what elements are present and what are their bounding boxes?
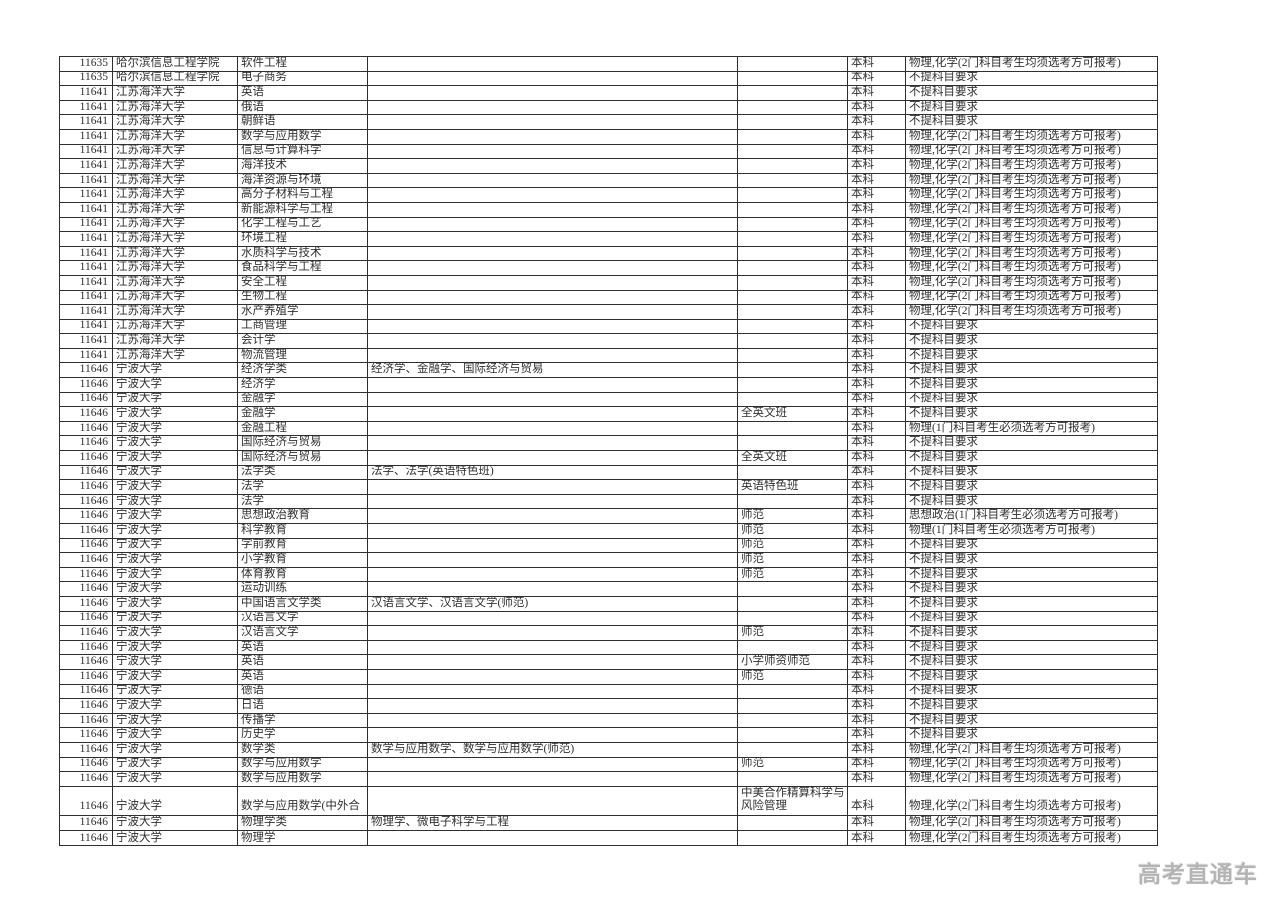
table-cell-level: 本科	[848, 101, 906, 115]
table-cell-remark: 全英文班	[738, 451, 848, 465]
table-cell-requirement: 物理,化学(2门科目考生均须选考方可报考)	[906, 203, 1157, 217]
table-cell-requirement: 不提科目要求	[906, 626, 1157, 640]
table-cell-university: 江苏海洋大学	[113, 320, 238, 334]
table-cell-remark: 师范	[738, 568, 848, 582]
table-cell-university: 宁波大学	[113, 772, 238, 786]
table-cell-code: 11641	[60, 247, 113, 261]
table-cell-major: 物流管理	[238, 349, 368, 363]
table-cell-major: 化学工程与工艺	[238, 218, 368, 232]
table-cell-university: 宁波大学	[113, 451, 238, 465]
table-cell-level: 本科	[848, 393, 906, 407]
table-row: 11646宁波大学法学类法学、法学(英语特色班)本科不提科目要求	[60, 466, 1157, 481]
table-cell-university: 宁波大学	[113, 685, 238, 699]
table-cell-included	[368, 451, 738, 465]
table-row: 11641江苏海洋大学环境工程本科物理,化学(2门科目考生均须选考方可报考)	[60, 232, 1157, 247]
table-cell-included	[368, 247, 738, 261]
table-cell-remark	[738, 247, 848, 261]
table-cell-remark	[738, 188, 848, 202]
table-cell-requirement: 不提科目要求	[906, 393, 1157, 407]
table-cell-code: 11641	[60, 130, 113, 144]
table-cell-included	[368, 57, 738, 71]
table-cell-level: 本科	[848, 378, 906, 392]
table-cell-university: 哈尔滨信息工程学院	[113, 57, 238, 71]
page: 11635哈尔滨信息工程学院软件工程本科物理,化学(2门科目考生均须选考方可报考…	[0, 0, 1280, 905]
table-cell-included	[368, 291, 738, 305]
table-cell-university: 宁波大学	[113, 728, 238, 742]
table-cell-university: 宁波大学	[113, 393, 238, 407]
table-cell-code: 11641	[60, 334, 113, 348]
table-cell-remark	[738, 159, 848, 173]
table-cell-code: 11641	[60, 261, 113, 275]
table-cell-level: 本科	[848, 772, 906, 786]
table-cell-requirement: 物理,化学(2门科目考生均须选考方可报考)	[906, 305, 1157, 319]
table-cell-code: 11646	[60, 831, 113, 846]
table-cell-level: 本科	[848, 539, 906, 553]
table-cell-level: 本科	[848, 203, 906, 217]
table-cell-included	[368, 188, 738, 202]
table-cell-code: 11646	[60, 466, 113, 480]
table-cell-major: 小学教育	[238, 553, 368, 567]
table-row: 11646宁波大学汉语言文学师范本科不提科目要求	[60, 626, 1157, 641]
table-cell-major: 学前教育	[238, 539, 368, 553]
table-cell-level: 本科	[848, 57, 906, 71]
table-cell-requirement: 不提科目要求	[906, 714, 1157, 728]
table-cell-included	[368, 276, 738, 290]
table-row: 11646宁波大学数学与应用数学师范本科物理,化学(2门科目考生均须选考方可报考…	[60, 758, 1157, 773]
table-row: 11641江苏海洋大学海洋资源与环境本科物理,化学(2门科目考生均须选考方可报考…	[60, 174, 1157, 189]
table-cell-university: 江苏海洋大学	[113, 276, 238, 290]
table-cell-level: 本科	[848, 670, 906, 684]
table-cell-university: 江苏海洋大学	[113, 115, 238, 129]
table-cell-included	[368, 480, 738, 494]
table-cell-code: 11641	[60, 145, 113, 159]
table-cell-included	[368, 115, 738, 129]
table-row: 11646宁波大学数学与应用数学本科物理,化学(2门科目考生均须选考方可报考)	[60, 772, 1157, 787]
table-cell-level: 本科	[848, 436, 906, 450]
table-cell-included	[368, 72, 738, 86]
table-cell-major: 中国语言文学类	[238, 597, 368, 611]
table-cell-requirement: 不提科目要求	[906, 349, 1157, 363]
table-cell-code: 11641	[60, 203, 113, 217]
table-cell-university: 江苏海洋大学	[113, 86, 238, 100]
table-cell-remark	[738, 612, 848, 626]
table-row: 11646宁波大学小学教育师范本科不提科目要求	[60, 553, 1157, 568]
table-cell-code: 11646	[60, 699, 113, 713]
table-cell-university: 江苏海洋大学	[113, 145, 238, 159]
table-cell-level: 本科	[848, 553, 906, 567]
table-cell-level: 本科	[848, 130, 906, 144]
table-cell-level: 本科	[848, 218, 906, 232]
table-cell-remark	[738, 349, 848, 363]
table-cell-university: 哈尔滨信息工程学院	[113, 72, 238, 86]
table-row: 11635哈尔滨信息工程学院软件工程本科物理,化学(2门科目考生均须选考方可报考…	[60, 57, 1157, 72]
table-cell-university: 江苏海洋大学	[113, 247, 238, 261]
table-cell-major: 数学与应用数学	[238, 772, 368, 786]
table-cell-university: 宁波大学	[113, 363, 238, 377]
table-cell-major: 海洋技术	[238, 159, 368, 173]
table-cell-level: 本科	[848, 320, 906, 334]
table-cell-remark	[738, 305, 848, 319]
table-cell-included	[368, 218, 738, 232]
table-cell-remark	[738, 699, 848, 713]
table-cell-included	[368, 203, 738, 217]
table-cell-remark	[738, 86, 848, 100]
table-cell-university: 宁波大学	[113, 553, 238, 567]
table-row: 11641江苏海洋大学水产养殖学本科物理,化学(2门科目考生均须选考方可报考)	[60, 305, 1157, 320]
table-cell-major: 思想政治教育	[238, 509, 368, 523]
table-cell-university: 宁波大学	[113, 597, 238, 611]
table-cell-code: 11646	[60, 509, 113, 523]
table-cell-remark: 师范	[738, 670, 848, 684]
table-cell-code: 11641	[60, 349, 113, 363]
table-cell-requirement: 不提科目要求	[906, 72, 1157, 86]
table-cell-level: 本科	[848, 407, 906, 421]
table-cell-included: 物理学、微电子科学与工程	[368, 816, 738, 830]
table-row: 11646宁波大学法学英语特色班本科不提科目要求	[60, 480, 1157, 495]
table-cell-level: 本科	[848, 232, 906, 246]
table-cell-major: 物理学类	[238, 816, 368, 830]
table-cell-level: 本科	[848, 159, 906, 173]
table-cell-code: 11641	[60, 320, 113, 334]
table-cell-major: 俄语	[238, 101, 368, 115]
table-cell-level: 本科	[848, 509, 906, 523]
table-row: 11646宁波大学金融工程本科物理(1门科目考生必须选考方可报考)	[60, 422, 1157, 437]
table-cell-remark: 师范	[738, 509, 848, 523]
table-cell-code: 11646	[60, 787, 113, 816]
table-cell-code: 11635	[60, 72, 113, 86]
table-cell-level: 本科	[848, 714, 906, 728]
table-cell-code: 11646	[60, 480, 113, 494]
table-cell-level: 本科	[848, 363, 906, 377]
table-cell-level: 本科	[848, 422, 906, 436]
table-cell-code: 11646	[60, 451, 113, 465]
table-cell-remark	[738, 203, 848, 217]
table-cell-level: 本科	[848, 758, 906, 772]
table-cell-included: 法学、法学(英语特色班)	[368, 466, 738, 480]
table-row: 11646宁波大学科学教育师范本科物理(1门科目考生必须选考方可报考)	[60, 524, 1157, 539]
table-cell-level: 本科	[848, 743, 906, 757]
table-row: 11646宁波大学金融学本科不提科目要求	[60, 393, 1157, 408]
table-cell-remark: 英语特色班	[738, 480, 848, 494]
table-cell-university: 江苏海洋大学	[113, 291, 238, 305]
table-row: 11641江苏海洋大学工商管理本科不提科目要求	[60, 320, 1157, 335]
table-cell-code: 11646	[60, 436, 113, 450]
table-cell-requirement: 不提科目要求	[906, 451, 1157, 465]
table-cell-requirement: 不提科目要求	[906, 699, 1157, 713]
table-cell-level: 本科	[848, 451, 906, 465]
table-cell-requirement: 不提科目要求	[906, 466, 1157, 480]
table-cell-major: 信息与计算科学	[238, 145, 368, 159]
table-cell-major: 环境工程	[238, 232, 368, 246]
table-cell-requirement: 不提科目要求	[906, 378, 1157, 392]
table-cell-code: 11646	[60, 422, 113, 436]
table-cell-requirement: 不提科目要求	[906, 115, 1157, 129]
table-cell-remark	[738, 101, 848, 115]
table-cell-remark	[738, 597, 848, 611]
table-cell-level: 本科	[848, 261, 906, 275]
table-row: 11646宁波大学物理学类物理学、微电子科学与工程本科物理,化学(2门科目考生均…	[60, 816, 1157, 831]
table-cell-major: 数学与应用数学	[238, 758, 368, 772]
table-row: 11635哈尔滨信息工程学院电子商务本科不提科目要求	[60, 72, 1157, 87]
table-cell-major: 安全工程	[238, 276, 368, 290]
table-cell-requirement: 物理,化学(2门科目考生均须选考方可报考)	[906, 743, 1157, 757]
table-cell-remark	[738, 232, 848, 246]
table-cell-major: 海洋资源与环境	[238, 174, 368, 188]
table-cell-remark	[738, 145, 848, 159]
table-cell-major: 法学	[238, 495, 368, 509]
table-cell-remark	[738, 466, 848, 480]
table-cell-remark	[738, 334, 848, 348]
table-cell-code: 11646	[60, 378, 113, 392]
table-cell-university: 宁波大学	[113, 641, 238, 655]
table-cell-level: 本科	[848, 334, 906, 348]
table-cell-level: 本科	[848, 699, 906, 713]
table-cell-level: 本科	[848, 568, 906, 582]
table-cell-requirement: 不提科目要求	[906, 101, 1157, 115]
table-cell-major: 新能源科学与工程	[238, 203, 368, 217]
table-cell-remark	[738, 685, 848, 699]
table-cell-remark: 师范	[738, 553, 848, 567]
table-cell-included	[368, 349, 738, 363]
table-cell-requirement: 不提科目要求	[906, 641, 1157, 655]
table-cell-university: 宁波大学	[113, 466, 238, 480]
table-row: 11641江苏海洋大学俄语本科不提科目要求	[60, 101, 1157, 116]
table-cell-level: 本科	[848, 305, 906, 319]
table-cell-included	[368, 758, 738, 772]
table-cell-included	[368, 436, 738, 450]
table-cell-included	[368, 831, 738, 846]
table-cell-remark	[738, 261, 848, 275]
table-cell-requirement: 物理,化学(2门科目考生均须选考方可报考)	[906, 188, 1157, 202]
table-cell-requirement: 不提科目要求	[906, 685, 1157, 699]
table-cell-university: 宁波大学	[113, 699, 238, 713]
table-cell-university: 江苏海洋大学	[113, 218, 238, 232]
table-cell-requirement: 物理(1门科目考生必须选考方可报考)	[906, 524, 1157, 538]
table-cell-code: 11646	[60, 568, 113, 582]
table-cell-university: 宁波大学	[113, 582, 238, 596]
table-cell-major: 物理学	[238, 831, 368, 846]
table-cell-level: 本科	[848, 524, 906, 538]
table-cell-requirement: 不提科目要求	[906, 320, 1157, 334]
table-cell-major: 德语	[238, 685, 368, 699]
table-cell-university: 江苏海洋大学	[113, 232, 238, 246]
table-cell-requirement: 物理,化学(2门科目考生均须选考方可报考)	[906, 261, 1157, 275]
table-cell-requirement: 不提科目要求	[906, 553, 1157, 567]
table-cell-remark	[738, 816, 848, 830]
table-cell-included	[368, 320, 738, 334]
table-cell-code: 11646	[60, 655, 113, 669]
table-cell-remark	[738, 276, 848, 290]
table-row: 11646宁波大学英语师范本科不提科目要求	[60, 670, 1157, 685]
table-row: 11646宁波大学数学类数学与应用数学、数学与应用数学(师范)本科物理,化学(2…	[60, 743, 1157, 758]
table-cell-major: 数学与应用数学	[238, 130, 368, 144]
table-cell-code: 11646	[60, 495, 113, 509]
table-cell-remark: 中美合作精算科学与风险管理	[738, 787, 848, 816]
table-cell-code: 11641	[60, 276, 113, 290]
table-cell-university: 江苏海洋大学	[113, 188, 238, 202]
table-cell-university: 宁波大学	[113, 626, 238, 640]
table-cell-code: 11641	[60, 218, 113, 232]
table-cell-remark	[738, 115, 848, 129]
table-cell-requirement: 物理,化学(2门科目考生均须选考方可报考)	[906, 232, 1157, 246]
table-cell-major: 汉语言文学	[238, 612, 368, 626]
table-cell-requirement: 不提科目要求	[906, 568, 1157, 582]
table-cell-remark	[738, 495, 848, 509]
table-cell-level: 本科	[848, 72, 906, 86]
table-cell-included	[368, 407, 738, 421]
table-cell-code: 11646	[60, 728, 113, 742]
table-cell-remark: 师范	[738, 758, 848, 772]
table-cell-university: 江苏海洋大学	[113, 174, 238, 188]
table-cell-requirement: 物理,化学(2门科目考生均须选考方可报考)	[906, 291, 1157, 305]
table-row: 11646宁波大学汉语言文学本科不提科目要求	[60, 612, 1157, 627]
table-cell-included	[368, 655, 738, 669]
table-cell-level: 本科	[848, 291, 906, 305]
table-cell-requirement: 不提科目要求	[906, 728, 1157, 742]
table-cell-remark	[738, 363, 848, 377]
table-cell-included: 经济学、金融学、国际经济与贸易	[368, 363, 738, 377]
table-cell-major: 朝鲜语	[238, 115, 368, 129]
table-cell-level: 本科	[848, 188, 906, 202]
table-cell-remark: 师范	[738, 539, 848, 553]
table-row: 11646宁波大学日语本科不提科目要求	[60, 699, 1157, 714]
table-cell-major: 科学教育	[238, 524, 368, 538]
table-cell-code: 11646	[60, 626, 113, 640]
table-cell-major: 法学	[238, 480, 368, 494]
table-cell-remark: 师范	[738, 524, 848, 538]
table-cell-level: 本科	[848, 582, 906, 596]
table-cell-level: 本科	[848, 86, 906, 100]
table-cell-university: 宁波大学	[113, 787, 238, 816]
table-cell-major: 经济学类	[238, 363, 368, 377]
table-cell-requirement: 不提科目要求	[906, 334, 1157, 348]
table-cell-code: 11646	[60, 772, 113, 786]
table-cell-major: 金融学	[238, 393, 368, 407]
table-cell-major: 法学类	[238, 466, 368, 480]
table-cell-university: 宁波大学	[113, 407, 238, 421]
table-cell-included	[368, 582, 738, 596]
table-cell-remark	[738, 291, 848, 305]
table-cell-major: 英语	[238, 655, 368, 669]
table-cell-remark	[738, 831, 848, 846]
table-row: 11646宁波大学学前教育师范本科不提科目要求	[60, 539, 1157, 554]
table-cell-major: 传播学	[238, 714, 368, 728]
table-cell-included	[368, 612, 738, 626]
table-cell-major: 食品科学与工程	[238, 261, 368, 275]
table-cell-level: 本科	[848, 816, 906, 830]
table-row: 11646宁波大学体育教育师范本科不提科目要求	[60, 568, 1157, 583]
table-cell-remark	[738, 72, 848, 86]
table-cell-remark: 师范	[738, 626, 848, 640]
table-cell-university: 江苏海洋大学	[113, 349, 238, 363]
table-cell-university: 宁波大学	[113, 568, 238, 582]
table-row: 11646宁波大学金融学全英文班本科不提科目要求	[60, 407, 1157, 422]
table-cell-included	[368, 145, 738, 159]
table-cell-university: 江苏海洋大学	[113, 305, 238, 319]
table-cell-included	[368, 524, 738, 538]
table-cell-major: 数学与应用数学(中外合	[238, 787, 368, 816]
table-cell-remark	[738, 378, 848, 392]
table-cell-university: 宁波大学	[113, 714, 238, 728]
table-cell-remark	[738, 728, 848, 742]
table-cell-included	[368, 378, 738, 392]
table-cell-level: 本科	[848, 276, 906, 290]
admission-table: 11635哈尔滨信息工程学院软件工程本科物理,化学(2门科目考生均须选考方可报考…	[59, 56, 1158, 846]
table-row: 11646宁波大学物理学本科物理,化学(2门科目考生均须选考方可报考)	[60, 831, 1157, 846]
table-cell-included	[368, 553, 738, 567]
table-row: 11646宁波大学经济学类经济学、金融学、国际经济与贸易本科不提科目要求	[60, 363, 1157, 378]
table-cell-university: 宁波大学	[113, 480, 238, 494]
table-cell-included	[368, 539, 738, 553]
table-cell-major: 水质科学与技术	[238, 247, 368, 261]
table-cell-code: 11646	[60, 816, 113, 830]
table-cell-major: 金融工程	[238, 422, 368, 436]
table-cell-requirement: 物理,化学(2门科目考生均须选考方可报考)	[906, 159, 1157, 173]
table-cell-requirement: 思想政治(1门科目考生必须选考方可报考)	[906, 509, 1157, 523]
table-cell-code: 11646	[60, 553, 113, 567]
table-cell-requirement: 不提科目要求	[906, 612, 1157, 626]
table-cell-university: 宁波大学	[113, 436, 238, 450]
table-cell-remark	[738, 57, 848, 71]
table-cell-included	[368, 130, 738, 144]
table-cell-level: 本科	[848, 349, 906, 363]
table-cell-level: 本科	[848, 466, 906, 480]
table-cell-level: 本科	[848, 480, 906, 494]
table-cell-university: 江苏海洋大学	[113, 101, 238, 115]
table-cell-code: 11641	[60, 291, 113, 305]
table-cell-included	[368, 174, 738, 188]
table-cell-major: 运动训练	[238, 582, 368, 596]
table-cell-university: 宁波大学	[113, 743, 238, 757]
table-cell-major: 英语	[238, 670, 368, 684]
table-row: 11646宁波大学运动训练本科不提科目要求	[60, 582, 1157, 597]
table-cell-remark	[738, 582, 848, 596]
table-cell-university: 宁波大学	[113, 612, 238, 626]
table-cell-included	[368, 422, 738, 436]
table-cell-level: 本科	[848, 597, 906, 611]
table-cell-included	[368, 334, 738, 348]
table-cell-level: 本科	[848, 145, 906, 159]
table-cell-major: 高分子材料与工程	[238, 188, 368, 202]
table-cell-remark	[738, 320, 848, 334]
table-cell-code: 11641	[60, 101, 113, 115]
table-cell-code: 11641	[60, 159, 113, 173]
table-cell-requirement: 物理,化学(2门科目考生均须选考方可报考)	[906, 145, 1157, 159]
table-cell-major: 水产养殖学	[238, 305, 368, 319]
table-cell-code: 11646	[60, 743, 113, 757]
table-cell-code: 11635	[60, 57, 113, 71]
table-cell-code: 11646	[60, 582, 113, 596]
table-row: 11641江苏海洋大学化学工程与工艺本科物理,化学(2门科目考生均须选考方可报考…	[60, 218, 1157, 233]
table-cell-level: 本科	[848, 174, 906, 188]
table-cell-code: 11646	[60, 539, 113, 553]
table-cell-code: 11646	[60, 597, 113, 611]
table-cell-requirement: 物理,化学(2门科目考生均须选考方可报考)	[906, 247, 1157, 261]
table-cell-major: 体育教育	[238, 568, 368, 582]
table-cell-university: 宁波大学	[113, 524, 238, 538]
table-cell-major: 生物工程	[238, 291, 368, 305]
table-cell-university: 宁波大学	[113, 495, 238, 509]
table-cell-requirement: 物理,化学(2门科目考生均须选考方可报考)	[906, 787, 1157, 816]
table-cell-requirement: 物理,化学(2门科目考生均须选考方可报考)	[906, 758, 1157, 772]
table-row: 11641江苏海洋大学食品科学与工程本科物理,化学(2门科目考生均须选考方可报考…	[60, 261, 1157, 276]
table-cell-level: 本科	[848, 247, 906, 261]
table-cell-code: 11641	[60, 115, 113, 129]
table-cell-requirement: 不提科目要求	[906, 539, 1157, 553]
table-cell-level: 本科	[848, 626, 906, 640]
table-cell-major: 英语	[238, 86, 368, 100]
table-row: 11641江苏海洋大学英语本科不提科目要求	[60, 86, 1157, 101]
